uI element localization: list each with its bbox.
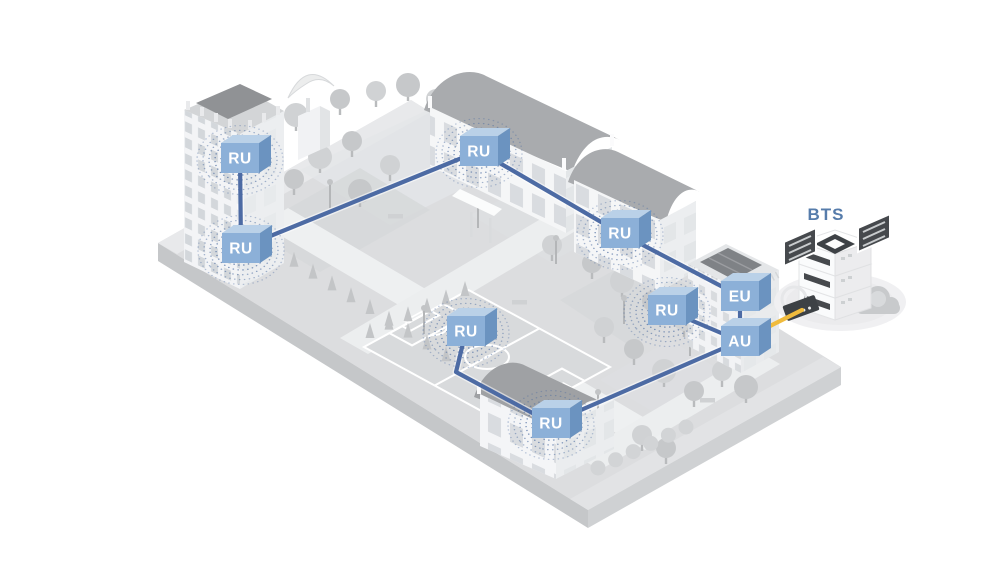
node-eu: EU bbox=[721, 273, 771, 311]
node-au: AU bbox=[721, 318, 771, 356]
node-label: RU bbox=[655, 303, 678, 320]
node-ru-annex-east: RU bbox=[601, 210, 651, 248]
node-ru-field: RU bbox=[447, 308, 497, 346]
node-label: RU bbox=[608, 226, 631, 243]
bts-label: BTS bbox=[808, 205, 845, 224]
node-label: RU bbox=[228, 151, 251, 168]
node-ru-school-south: RU bbox=[532, 400, 582, 438]
node-label: RU bbox=[539, 416, 562, 433]
node-label: RU bbox=[229, 241, 252, 258]
node-label: RU bbox=[467, 144, 490, 161]
node-label: EU bbox=[729, 289, 752, 306]
node-ru-tower-lower: RU bbox=[222, 225, 272, 263]
node-ru-school-north: RU bbox=[460, 128, 510, 166]
node-label: RU bbox=[454, 324, 477, 341]
node-ru-plaza: RU bbox=[648, 287, 698, 325]
status-panel-right bbox=[858, 214, 890, 252]
node-ru-tower-upper: RU bbox=[221, 135, 271, 173]
node-label: AU bbox=[728, 334, 751, 351]
das-campus-illustration: BTS RURURURURURURUEUAU bbox=[0, 0, 1000, 562]
